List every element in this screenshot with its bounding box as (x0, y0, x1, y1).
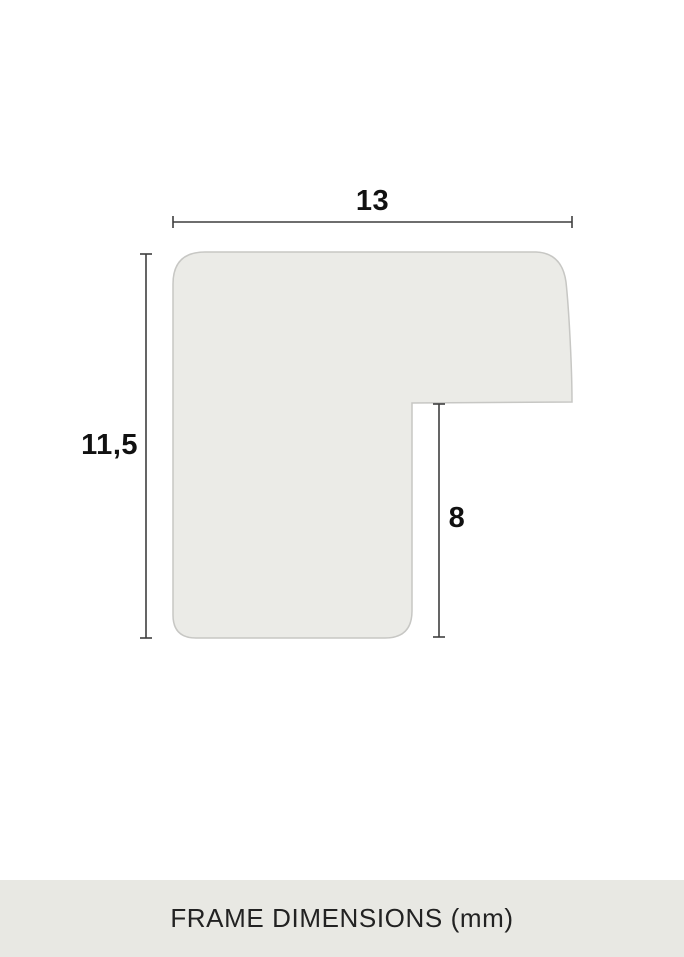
height-dimension-line (140, 254, 152, 638)
height-dimension-label: 11,5 (56, 428, 138, 462)
footer-bar: FRAME DIMENSIONS (mm) (0, 880, 684, 957)
rabbet-dimension-label: 8 (444, 501, 470, 535)
footer-caption: FRAME DIMENSIONS (mm) (170, 903, 513, 934)
width-dimension-label: 13 (322, 184, 423, 218)
frame-profile-shape (173, 252, 572, 638)
frame-dimensions-page: 13 11,5 8 FRAME DIMENSIONS (mm) (0, 0, 684, 957)
